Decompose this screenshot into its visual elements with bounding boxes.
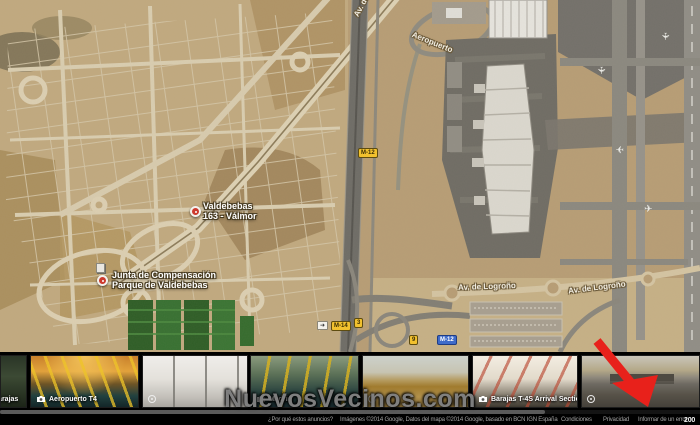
strip-scrollbar-thumb[interactable] xyxy=(0,410,545,414)
marker-label: Junta de Compensación Parque de Valdebeb… xyxy=(112,270,216,290)
satellite-map-canvas[interactable]: ✈ ✈ ✈ ✈ xyxy=(0,0,700,352)
direction-sign-icon: ➜ xyxy=(317,321,328,330)
red-marker-icon xyxy=(97,275,108,286)
photo-thumbnail-aeropuerto-t4[interactable]: Aeropuerto T4 xyxy=(30,355,139,408)
road-shield-m14: M-14 xyxy=(331,321,351,331)
photo-strip: Barajas Aeropuerto T4 Madrid xyxy=(0,352,700,415)
map-marker-junta-compensacion[interactable]: Junta de Compensación Parque de Valdebeb… xyxy=(97,275,108,286)
streetview-icon xyxy=(148,395,156,403)
road-shield-exit-3: 3 xyxy=(354,318,363,328)
photo-thumbnail-field[interactable] xyxy=(362,355,469,408)
thumbnail-label: Barajas xyxy=(0,395,18,403)
photo-thumbnail-interior[interactable] xyxy=(142,355,248,408)
report-error-link[interactable]: Informar de un error xyxy=(638,417,687,423)
thumbnail-label xyxy=(368,395,379,403)
camera-icon xyxy=(36,395,46,403)
marker-label: Valdebebas 163 - Válmor xyxy=(203,201,257,221)
streetview-icon xyxy=(587,395,595,403)
footer-bar: ¿Por qué estos anuncios? Imágenes ©2014 … xyxy=(0,415,700,425)
thumbnail-label: Aeropuerto T4 xyxy=(36,395,97,403)
building-icon xyxy=(96,263,105,273)
photo-thumbnail-barajas[interactable]: Barajas xyxy=(0,355,27,408)
photo-thumbnail-t4s-arrival[interactable]: Barajas T-4S Arrival Section xyxy=(472,355,578,408)
road-shield-m12-north: M-12 xyxy=(358,148,378,158)
photo-thumbnail-highway[interactable] xyxy=(581,355,700,408)
maps-app-window: ✈ ✈ ✈ ✈ xyxy=(0,0,700,425)
strip-scrollbar-track[interactable] xyxy=(0,410,700,414)
streetview-icon xyxy=(368,395,376,403)
why-these-ads-link[interactable]: ¿Por qué estos anuncios? xyxy=(268,417,333,423)
map-attribution: Imágenes ©2014 Google, Datos del mapa ©2… xyxy=(340,417,557,423)
terms-link[interactable]: Condiciones xyxy=(561,417,592,423)
thumbnail-label xyxy=(148,395,159,403)
thumbnail-label: Barajas T-4S Arrival Section xyxy=(478,395,578,403)
map-marker-valdebebas-163[interactable]: Valdebebas 163 - Válmor xyxy=(190,206,201,217)
road-shield-m12-south: M-12 xyxy=(437,335,457,345)
camera-icon xyxy=(256,395,266,403)
red-marker-icon xyxy=(190,206,201,217)
privacy-link[interactable]: Privacidad xyxy=(603,417,629,423)
photo-thumbnail-madrid[interactable]: Madrid xyxy=(250,355,359,408)
road-shield-exit-9: 9 xyxy=(409,335,418,345)
thumbnail-label: Madrid xyxy=(256,395,292,403)
scale-label: 200 xyxy=(684,417,695,424)
camera-icon xyxy=(478,395,488,403)
satellite-imagery: ✈ ✈ ✈ ✈ xyxy=(0,0,700,352)
thumbnail-label xyxy=(587,395,598,403)
